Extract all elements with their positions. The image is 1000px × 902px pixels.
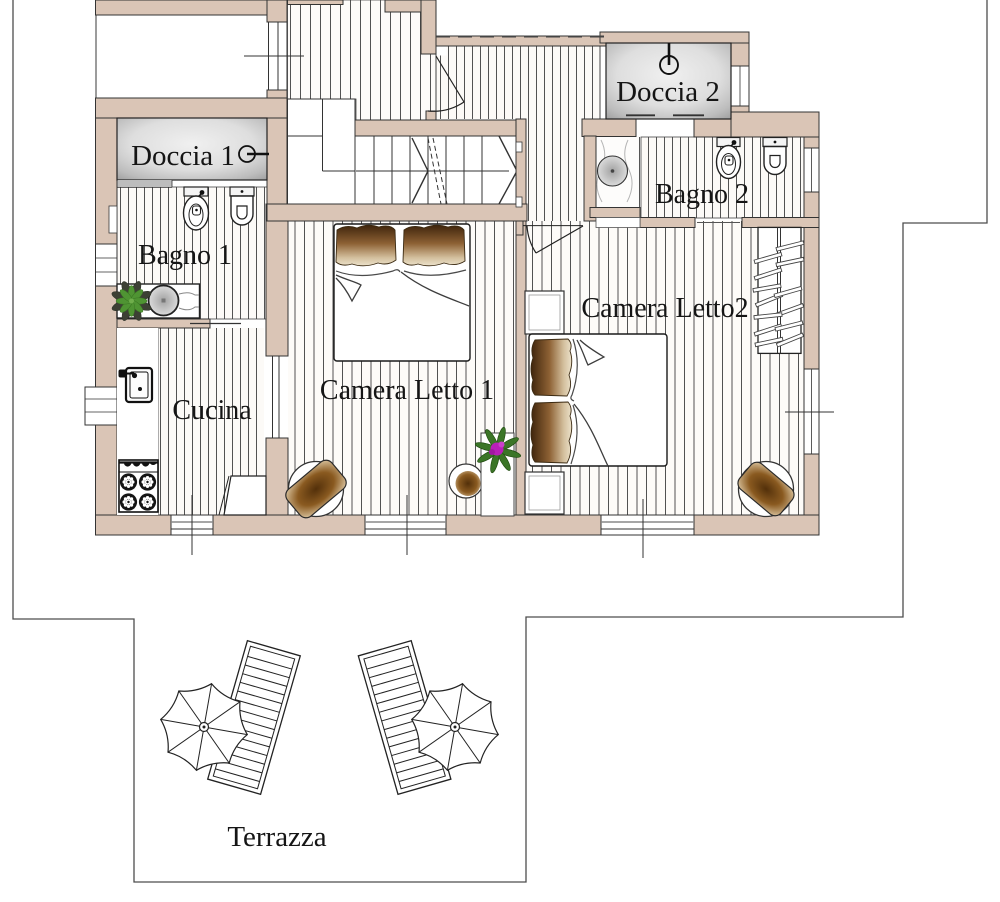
svg-text:Bagno 2: Bagno 2 bbox=[655, 179, 749, 210]
svg-text:Cucina: Cucina bbox=[172, 395, 252, 426]
svg-text:Doccia 2: Doccia 2 bbox=[616, 76, 720, 108]
svg-text:Doccia 1: Doccia 1 bbox=[131, 140, 235, 172]
svg-text:Bagno 1: Bagno 1 bbox=[138, 240, 232, 271]
svg-text:Camera Letto2: Camera Letto2 bbox=[581, 293, 748, 324]
svg-text:Camera Letto 1: Camera Letto 1 bbox=[320, 375, 494, 406]
svg-text:Terrazza: Terrazza bbox=[227, 821, 326, 853]
